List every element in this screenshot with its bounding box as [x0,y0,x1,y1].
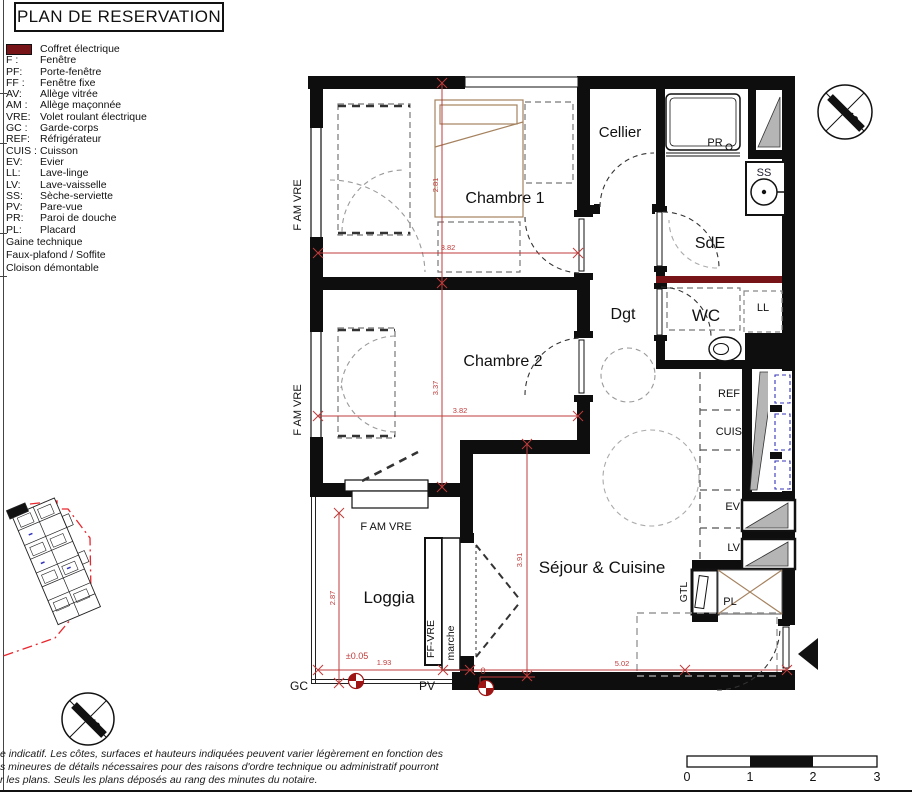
legend-label: Fenêtre [40,55,76,66]
disclaimer-line: e indicatif. Les côtes, surfaces et haut… [0,748,460,761]
dim-c2-w: 3.82 [453,406,468,415]
kitchen-counter [700,372,740,562]
label-f-am-vre-3: F AM VRE [360,521,411,533]
legend: GTL:Coffret électrique F :Fenêtre PF:Por… [6,44,266,275]
level-loggia-value: ±0.05 [346,651,368,661]
legend-swatch-gaine: Gaine technique [6,237,266,249]
label-gc: GC [290,679,308,693]
label-lv: LV [727,542,740,554]
furniture-dashed-bold [338,106,418,481]
shower [666,94,740,156]
room-label-cellier: Cellier [599,124,642,141]
disclaimer-line: s mineures de détails nécessaires pour d… [0,761,460,774]
room-label-chambre1: Chambre 1 [465,190,544,207]
label-pv: PV [419,679,435,693]
room-label-chambre2: Chambre 2 [463,353,542,370]
label-ref: REF [718,388,740,400]
dim-loggia-w: 1.93 [377,658,392,667]
legend-label: Gaine technique [6,237,82,248]
legend-abbr: REF: [6,134,40,145]
legend-label: Faux-plafond / Soffite [6,250,106,261]
site-plan [0,489,107,657]
disclaimer-line: r les plans. Seuls les plans déposés au … [0,774,460,787]
label-ss: SS [757,167,772,179]
page-title: PLAN DE RESERVATION [14,2,224,32]
scale-bar: 0 1 2 3 [684,756,881,784]
cloison-demontable [656,276,782,283]
legend-entry: F :Fenêtre [6,55,266,66]
scale-tick-0: 0 [684,770,691,784]
legend-abbr: LL: [6,168,40,179]
legend-swatch-cloison: Cloison démontable [6,263,266,275]
legend-entry: PL:Placard [6,225,266,236]
compass-bottom: S [62,693,114,745]
legend-swatch-faux-plafond: Faux-plafond / Soffite [6,250,266,262]
label-f-am-vre-1: F AM VRE [292,179,304,230]
label-pr: PR [707,137,722,149]
compass-top: S [818,85,872,139]
dim-loggia-h: 2.87 [328,591,337,606]
dim-c1-w: 3.82 [441,243,456,252]
legend-entry: LL:Lave-linge [6,168,266,179]
legend-label: Cloison démontable [6,263,99,274]
dim-sejour-h: 3.91 [515,553,524,568]
scale-tick-1: 1 [747,770,754,784]
entrance-arrow [798,638,818,670]
room-label-loggia: Loggia [363,588,415,607]
dim-c2-h: 3.37 [431,381,440,396]
label-gtl: GTL [678,582,690,603]
cloison-demontable-swatch [6,44,32,55]
legend-abbr: F : [6,55,40,66]
room-label-wc: WC [692,306,720,325]
legend-entry: REF:Réfrigérateur [6,134,266,145]
toilet [709,337,741,361]
furniture-dashed [338,102,740,438]
label-ff-vre: FF-VRE [425,620,437,658]
label-ll: LL [757,302,769,314]
room-label-sde: SdE [695,235,725,252]
scale-tick-3: 3 [874,770,881,784]
room-label-sejour: Séjour & Cuisine [539,558,666,577]
label-f-am-vre-2: F AM VRE [292,384,304,435]
legend-label: Lave-linge [40,168,88,179]
legend-label: Placard [40,225,76,236]
dim-sejour-w: 5.02 [615,659,630,668]
scale-tick-2: 2 [810,770,817,784]
legend-label: Réfrigérateur [40,134,101,145]
disclaimer: e indicatif. Les côtes, surfaces et haut… [0,748,460,787]
level-sejour-value: 0 [480,666,485,676]
label-marche: marche [445,625,457,660]
label-cuis: CUIS [716,426,742,438]
label-pl: PL [723,596,736,608]
dim-c1-h: 2.81 [431,178,440,193]
gtl-box [692,570,718,614]
label-ev: EV [725,501,740,513]
sofa-dashed [637,613,777,676]
room-label-dgt: Dgt [611,306,636,323]
legend-abbr: PL: [6,225,40,236]
